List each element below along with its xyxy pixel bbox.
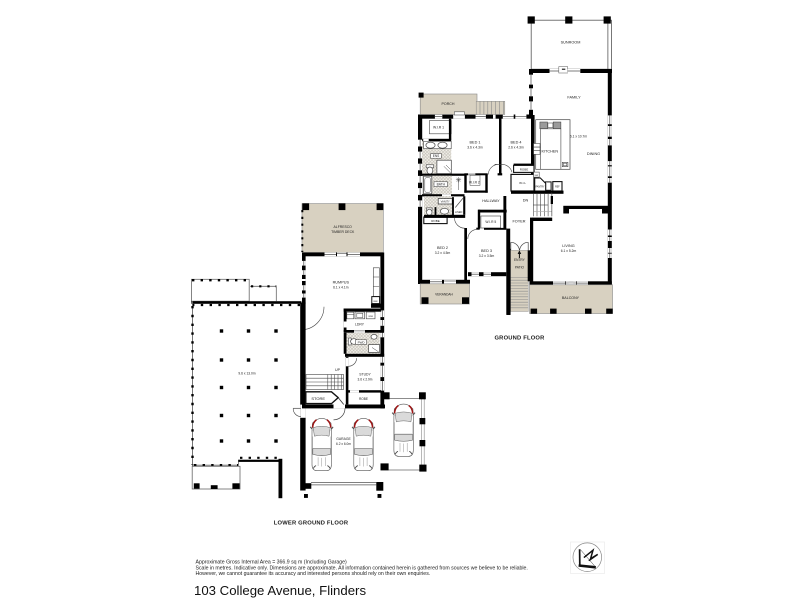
svg-text:VERANDAH: VERANDAH [435, 293, 453, 297]
svg-text:3.6 x 4.3m: 3.6 x 4.3m [467, 146, 483, 150]
svg-text:REF: REF [555, 187, 560, 189]
svg-text:ROBE: ROBE [359, 397, 368, 401]
svg-text:W.I.L: W.I.L [519, 181, 526, 185]
svg-text:MW: MW [535, 175, 539, 177]
svg-text:STUDY: STUDY [359, 372, 371, 376]
svg-text:BED 1: BED 1 [470, 140, 481, 144]
svg-text:2.6 x 4.3m: 2.6 x 4.3m [508, 146, 524, 150]
svg-text:However, we cannot guarantee i: However, we cannot guarantee its accurac… [196, 571, 431, 577]
svg-text:6.1 x 5.2m: 6.1 x 5.2m [561, 249, 577, 253]
svg-text:ENTRY: ENTRY [514, 258, 526, 262]
svg-text:BALCONY: BALCONY [562, 296, 580, 300]
svg-text:DN: DN [523, 199, 529, 203]
svg-text:LOWER GROUND FLOOR: LOWER GROUND FLOOR [274, 521, 349, 527]
svg-text:W.I.R 1: W.I.R 1 [433, 126, 444, 130]
svg-text:6.1 x 4.1m: 6.1 x 4.1m [333, 286, 349, 290]
svg-text:GARAGE: GARAGE [336, 437, 351, 441]
svg-text:ENS: ENS [433, 154, 440, 158]
svg-text:KITCHEN: KITCHEN [541, 150, 558, 154]
svg-text:BED 2: BED 2 [437, 246, 448, 250]
svg-text:LDRY: LDRY [355, 323, 365, 327]
svg-text:DINING: DINING [587, 152, 600, 156]
svg-text:PORCH: PORCH [442, 102, 455, 106]
svg-text:Approximate Gross Internal Are: Approximate Gross Internal Area = 366.9 … [196, 559, 348, 565]
svg-text:3.6 x 2.9m: 3.6 x 2.9m [358, 378, 373, 382]
svg-text:SUNROOM: SUNROOM [561, 41, 581, 45]
svg-text:PATIO: PATIO [515, 265, 525, 269]
svg-text:W.I.R 2: W.I.R 2 [469, 181, 480, 185]
svg-text:BED 4: BED 4 [511, 140, 522, 144]
svg-text:RUMPUS: RUMPUS [333, 280, 350, 284]
svg-text:BATH: BATH [437, 183, 446, 187]
svg-text:ROBE: ROBE [520, 167, 529, 171]
svg-text:VANITY: VANITY [441, 200, 450, 204]
svg-text:ROBE: ROBE [431, 219, 440, 223]
svg-text:TIMBER DECK: TIMBER DECK [331, 230, 355, 234]
svg-text:LINEN: LINEN [455, 211, 463, 214]
svg-text:PWD: PWD [358, 340, 366, 344]
svg-text:W.I.R 5: W.I.R 5 [485, 220, 496, 224]
svg-text:GROUND FLOOR: GROUND FLOOR [494, 336, 545, 342]
svg-text:STORE: STORE [311, 396, 325, 401]
svg-text:LIVING: LIVING [562, 244, 574, 248]
svg-text:FOYER: FOYER [512, 220, 525, 224]
svg-text:ALFRESCO: ALFRESCO [334, 225, 353, 229]
svg-text:6.2 x 6.0m: 6.2 x 6.0m [336, 442, 351, 446]
svg-text:HALLWAY: HALLWAY [482, 199, 500, 203]
svg-text:W/M: W/M [368, 316, 373, 318]
svg-text:103 College Avenue, Flinders: 103 College Avenue, Flinders [194, 583, 366, 598]
svg-text:FAMILY: FAMILY [567, 95, 581, 99]
svg-text:PANTRY: PANTRY [535, 186, 545, 189]
svg-text:BED 3: BED 3 [481, 249, 492, 253]
svg-text:3.2 x 4.5m: 3.2 x 4.5m [435, 251, 451, 255]
svg-text:REF: REF [374, 301, 379, 303]
svg-text:UP: UP [335, 368, 341, 372]
svg-text:9.6 x 13.0m: 9.6 x 13.0m [238, 371, 255, 375]
svg-text:3.2 x 3.5m: 3.2 x 3.5m [479, 254, 495, 258]
svg-text:6.1 x 10.7m: 6.1 x 10.7m [570, 134, 587, 138]
